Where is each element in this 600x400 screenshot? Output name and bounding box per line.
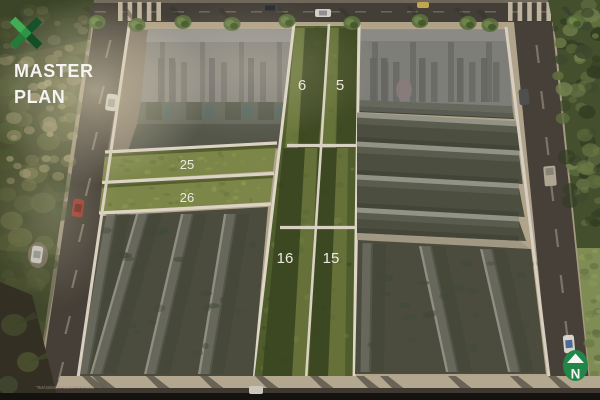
svg-text:MASTER: MASTER bbox=[14, 61, 94, 81]
svg-text:*IMÁGENES ILUSTRATIVAS: *IMÁGENES ILUSTRATIVAS bbox=[36, 384, 94, 390]
svg-text:PLAN: PLAN bbox=[14, 87, 65, 107]
svg-text:N: N bbox=[571, 367, 581, 382]
